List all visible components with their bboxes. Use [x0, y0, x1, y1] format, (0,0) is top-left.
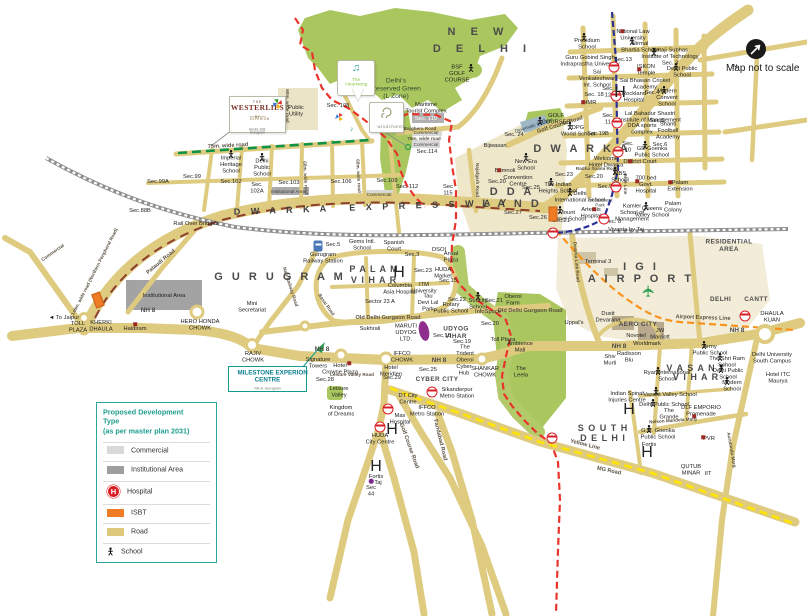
map-label: Shanti Football Academy — [656, 121, 680, 140]
road-swatch — [107, 528, 124, 536]
map-label: Leisure Valley Road — [330, 372, 374, 377]
map-label: Sukhrali — [360, 326, 381, 332]
dot-icon — [620, 29, 624, 33]
metro-icon — [599, 214, 610, 225]
map-label: Sec. 11 — [602, 113, 614, 126]
train-icon — [314, 241, 323, 252]
legend-label: School — [121, 547, 143, 555]
school-icon — [650, 399, 657, 408]
map-label: Sec.15 — [439, 278, 457, 284]
school-icon — [642, 141, 649, 150]
map-label: Delhi University South Campus — [752, 352, 792, 365]
legend: Proposed Development Type (as per master… — [96, 402, 217, 563]
map-label: Hotel Crowne Plaza — [322, 363, 358, 376]
map-label: Novotel — [626, 333, 646, 339]
map-label: ◄ To Jaipur — [49, 315, 80, 321]
map-label: GD Goenka Public School — [635, 146, 670, 159]
map-label: Gurugram Railway Station — [303, 252, 343, 265]
westerlies-location: Sector 108, Gurugram — [246, 128, 269, 134]
map-label: Fortis — [642, 442, 656, 448]
map-label: V I H A R — [673, 372, 719, 382]
map-label: The Trident Oberoi — [456, 344, 474, 363]
map-label: Sec.5 — [326, 242, 341, 248]
map-label: Sec. 10 — [622, 141, 634, 154]
map-label: GOLF COURSES — [542, 113, 570, 126]
map-label: Suncity School — [469, 298, 488, 311]
map-label: Sai Bhawan Cricket Academy — [620, 78, 670, 91]
map-label: Vasant Valley School — [643, 392, 697, 398]
map-label: IFFCO Metro Station — [410, 405, 444, 418]
school-icon — [581, 33, 588, 42]
milestone-name: MILESTONE EXPERION CENTRE — [237, 369, 297, 383]
map-label: Sikanderpur Metro Station — [440, 387, 474, 400]
map-label: Golf Course Road — [536, 115, 583, 135]
isbt-icon — [549, 207, 558, 222]
map-label: Gems Intl. School — [349, 239, 375, 252]
dot-icon — [635, 179, 639, 183]
map-label: Oberoi Farm — [504, 294, 521, 307]
map-label: RESIDENTIAL AREA — [705, 239, 752, 253]
map-label: Sec.20 — [481, 321, 499, 327]
map-label: Sec.29 — [383, 375, 401, 381]
school-icon — [724, 377, 731, 386]
legend-label: Institutional Area — [131, 466, 183, 474]
map-label: Tau Devi Lal Park — [418, 293, 439, 312]
map-label: Institutional Area — [143, 293, 186, 299]
map-label: The Leela — [514, 366, 528, 379]
map-label: Welcome Hotel Dwarka — [589, 156, 624, 169]
map-label: Sec.102 — [220, 179, 241, 185]
map-label: Old Delhi Gurgaon Road — [355, 315, 420, 321]
map-label: Sec.20 — [585, 174, 603, 180]
milestone-location: NH-8, Gurugram — [250, 387, 285, 391]
map-label: SHANKAR CHOWK — [471, 366, 499, 379]
map-label: Max Hospital — [390, 413, 411, 426]
map-label: UDYOG VIHAR — [443, 326, 468, 340]
map-label: Sec.25 — [522, 185, 540, 191]
windchants-logo: windchants — [369, 102, 404, 133]
legend-label: Hospital — [127, 487, 152, 495]
commercial-swatch — [107, 446, 124, 454]
map-label: Commercial — [414, 142, 439, 147]
map-label: NH 8 — [612, 343, 627, 350]
map-label: Fortis — [369, 474, 383, 480]
metro-icon — [427, 387, 438, 398]
map-label: NH 8 — [730, 327, 745, 334]
map-label: V I H A R — [351, 275, 397, 285]
map-label: New Railway Road — [281, 267, 299, 308]
map-label: 140m. wide road (Northern Peripheral Roa… — [71, 228, 120, 317]
map-label: Sec.23 — [555, 172, 573, 178]
map-label: D E L H I — [580, 433, 626, 443]
westerlies-pre: THE — [246, 101, 269, 103]
dot-icon — [628, 159, 632, 163]
map-label: Columbia Asia Hospital — [383, 283, 417, 296]
map-label: Sec.27 — [504, 210, 522, 216]
map-label: Sec. 110 — [415, 116, 437, 122]
westerlies-tagline: BY EXPERION — [250, 116, 266, 120]
map-label: I G I — [623, 261, 659, 273]
map-label: Hotel ITC Maurya — [766, 372, 790, 385]
map-label: Radisson Blu — [617, 351, 641, 364]
school-icon — [557, 206, 564, 215]
hospital-icon: H — [370, 458, 382, 476]
map-label: The Indian Heights School — [539, 182, 578, 195]
map-label: Bijwasan — [483, 143, 506, 149]
hospital-icon: H — [386, 421, 398, 439]
metro-icon — [613, 147, 624, 158]
map-label: Sec.99 — [183, 174, 201, 180]
map-label: Delhi Public School — [667, 66, 697, 79]
location-map: ♪ N E WD E L H ID W A R K AD D AL A N DI… — [0, 0, 807, 616]
map-label: Golf Course Road — [398, 423, 420, 470]
map-label: Basai Road — [317, 293, 336, 317]
map-label: Nelson Mandela Marg — [649, 417, 697, 426]
map-label: MBS School — [611, 171, 629, 184]
map-label: Sec.21 — [552, 218, 570, 224]
map-label: Ansal Plaza — [444, 251, 458, 264]
metro-icon — [611, 182, 622, 193]
school-icon — [548, 178, 555, 187]
map-label: D W A R K A E X P R E S S W A Y — [234, 197, 511, 217]
milestone-experion-callout: MILESTONE EXPERION CENTRE NH-8, Gurugram — [228, 366, 307, 392]
map-label: Commercial — [367, 192, 392, 197]
map-label: Sec.5 — [650, 118, 665, 124]
institutional-swatch — [107, 466, 124, 474]
map-label: DPG World School — [561, 125, 595, 138]
map-label: Signature Towers — [306, 357, 331, 370]
legend-row: School — [103, 543, 210, 559]
map-label: S O U T H — [578, 423, 629, 433]
map-label: Sec.26 — [529, 215, 547, 221]
map-label: Sec. 112 — [396, 184, 418, 190]
map-label: BSF GOLF COURSE — [445, 64, 470, 83]
map-label: Sec.103 — [278, 180, 299, 186]
map-label: L A N D — [482, 198, 542, 210]
map-label: G.D. Goenka Public School — [641, 428, 676, 441]
map-label: PVR — [703, 436, 715, 442]
map-label: NH 8 — [141, 307, 156, 314]
plane-icon: ✈ — [639, 284, 659, 297]
compass: N Map not to scale — [726, 38, 786, 74]
map-label: Sec.6 — [653, 142, 668, 148]
dot-icon — [637, 67, 641, 71]
isbt-icon — [91, 291, 105, 308]
map-label: D E L H I — [433, 43, 529, 55]
metro-icon — [740, 311, 751, 322]
school-icon — [643, 202, 650, 211]
map-label: InfoSpace — [475, 309, 501, 315]
map-label: HERO HONDA CHOWK — [180, 319, 219, 332]
map-label: Diplomatic Enclave — [514, 117, 553, 134]
map-label: Sec. 18 — [584, 92, 604, 98]
hospital-icon: H — [623, 401, 635, 419]
map-label: Sector 23 A — [365, 299, 395, 305]
map-label: Dwarka Link Road — [572, 242, 581, 283]
map-label: D W A R K A — [533, 143, 630, 155]
map-label: G U R U G R A M — [214, 271, 346, 283]
map-label: 75m. wide road — [208, 142, 249, 150]
map-label: QUTUB MINAR — [681, 464, 701, 477]
map-label: Sec.109 — [376, 178, 397, 184]
school-icon — [228, 150, 235, 159]
map-label: IFFCO CHOWK — [391, 351, 413, 364]
heartsong-name: The Heartsong — [345, 77, 367, 87]
isbt-swatch — [107, 509, 124, 517]
map-label: Toll Plaza — [491, 337, 516, 343]
hospital-icon: H — [393, 264, 405, 282]
map-label: Mount Carmel School — [548, 210, 586, 223]
dot-icon — [347, 361, 351, 365]
metro-icon — [383, 404, 394, 415]
legend-row: Road — [103, 523, 210, 539]
map-label: KHERKI DHAULA — [89, 320, 112, 333]
map-label: Bajghera Road — [404, 126, 437, 131]
map-label: Haldiram — [123, 326, 146, 332]
school-icon — [653, 387, 660, 396]
school-icon — [718, 365, 725, 374]
map-label: Presidium School — [574, 38, 600, 51]
map-label: MG Road — [596, 465, 621, 476]
map-label: Cyber Hub — [456, 364, 471, 377]
map-label: Faridabad Road — [432, 419, 448, 462]
pinwheel-icon — [272, 98, 283, 109]
map-label: Sec.13 — [614, 57, 632, 63]
map-label: Institutional Area — [271, 189, 305, 194]
map-label: Guru Gobind Singh Indraprastha Universit… — [560, 55, 619, 68]
map-label: Sec. 12 — [602, 86, 614, 99]
hospital-icon: H — [614, 84, 626, 102]
map-label: Blue Line — [622, 174, 627, 195]
map-label: Rockland Hospital — [622, 91, 646, 104]
map-label: Sec.22 — [448, 297, 466, 303]
map-label: Kamler School of Management — [615, 203, 649, 222]
map-label: Sec.18 — [433, 333, 451, 339]
metro-icon — [375, 422, 386, 433]
school-icon — [629, 37, 636, 46]
map-label: Terminal 3 — [585, 259, 612, 265]
school-icon — [651, 48, 658, 57]
heartsong-logo: ♫ The Heartsong — [337, 60, 375, 96]
music-notes-icon: ♫ — [338, 63, 374, 74]
school-icon — [673, 63, 680, 72]
map-label: Ryan International School — [644, 370, 691, 383]
map-label: Queens Valley School — [635, 206, 669, 219]
map-label: Mini Secretariat — [238, 301, 266, 314]
map-label: Sec. 24 — [504, 132, 524, 138]
map-label: Bamnoli — [495, 168, 516, 174]
map-label: 60m. wide road — [355, 159, 362, 193]
school-icon — [259, 153, 266, 162]
map-label: Sec.3 — [405, 252, 420, 258]
map-label: MARUTI UDYOG LTD. — [395, 323, 417, 342]
school-icon — [661, 86, 668, 95]
map-label: IHMR — [582, 100, 597, 106]
dot-icon — [581, 100, 585, 104]
map-label: IIT — [705, 471, 712, 477]
map-label: Sec.25 — [419, 367, 437, 373]
map-label: 700 bed Govt. Hospital — [636, 175, 657, 194]
map-label: TOLL PLAZA — [69, 321, 87, 334]
school-icon — [655, 367, 662, 376]
map-label: Dusit Devarana — [596, 311, 621, 324]
map-label: Yellow Line — [569, 438, 600, 451]
map-label: 60m. wide road — [302, 161, 309, 195]
map-label: Sai Venkateshwar Int. School — [579, 69, 615, 88]
map-label: Old Delhi Gurgaon Road — [497, 308, 562, 314]
school-swatch — [107, 547, 114, 556]
metro-icon — [612, 118, 623, 129]
map-label: Palam Colony — [664, 201, 682, 214]
hospital-icon: H — [641, 444, 653, 462]
hospital-swatch: H — [107, 485, 120, 498]
dot-icon — [133, 322, 137, 326]
legend-row: HHospital — [103, 481, 210, 501]
legend-label: Commercial — [131, 447, 169, 455]
golfer-icon — [537, 117, 544, 126]
metro-icon — [609, 62, 620, 73]
map-label: Najafgarh Road — [474, 163, 479, 197]
map-label: District Court — [623, 159, 656, 165]
map-label: D D A — [490, 186, 535, 198]
map-label: Spanish Court — [384, 240, 405, 253]
map-label: Sec.19 — [453, 339, 471, 345]
map-label: National Law University — [616, 29, 649, 42]
map-label: Netaji Subhas Institute of Technology Se… — [641, 47, 698, 66]
school-icon — [701, 341, 708, 350]
north-label: N — [733, 63, 738, 70]
school-icon — [646, 425, 653, 434]
map-label: New Era School — [515, 159, 537, 172]
legend-label: ISBT — [131, 509, 147, 517]
map-label: Nirmal Bhartia School — [621, 41, 658, 54]
map-label: Rotary Public School — [434, 302, 469, 315]
map-label: Modern School — [722, 380, 742, 393]
north-arrow-icon — [745, 38, 767, 60]
map-label: Indian Spinal Injuries Centre — [608, 391, 645, 404]
map-label: Delhi Public School — [639, 402, 689, 408]
map-label: Delhi's Reserved Green (L Zone) — [371, 78, 421, 101]
map-label: Sec.88B — [129, 208, 151, 214]
map-label: Vivanta by Taj — [608, 227, 644, 233]
map-label: Worldmark — [633, 341, 661, 347]
map-label: Pataudi Road — [145, 248, 176, 276]
map-label: The Grande — [659, 408, 678, 421]
dot-icon — [668, 180, 672, 184]
map-label: NH 8 — [315, 346, 330, 353]
map-label: P A L A M — [349, 264, 398, 274]
map-label: DDA sports complex — [627, 123, 656, 136]
dot-icon — [497, 168, 501, 172]
map-label: CYBER CITY — [416, 376, 459, 383]
map-label: Shiv Murti — [604, 354, 617, 367]
school-icon — [717, 353, 724, 362]
map-label: Sec.106 — [330, 179, 351, 185]
map-label: Uppal's — [564, 320, 583, 326]
map-label: DHAULA KUAN — [760, 311, 783, 324]
legend-row: Institutional Area — [103, 461, 210, 477]
map-label: RAJIV CHOWK — [242, 351, 264, 364]
map-label: Artemis Hospital — [581, 207, 602, 220]
metro-icon — [547, 433, 558, 444]
map-label: ISKON Temple — [637, 64, 656, 77]
map-label: Commercial — [41, 243, 66, 262]
legend-title-line1: Proposed Development Type — [103, 408, 199, 425]
map-label: Aurobindo Marg — [725, 432, 736, 468]
map-label: DT City Centre — [398, 393, 417, 406]
legend-row: Commercial — [103, 442, 210, 458]
dot-icon — [692, 414, 696, 418]
map-label: 75m. wide road — [407, 136, 441, 141]
map-label: Radha Soami Road — [576, 166, 618, 171]
legend-label: Road — [131, 528, 148, 536]
map-label: Taj — [374, 480, 381, 486]
map-label: Kingdom of Dreams — [328, 405, 355, 418]
map-label: Delhi Public School — [253, 158, 271, 177]
map-label: Sec.20 — [488, 179, 506, 185]
map-label: Sec.99A — [147, 179, 169, 185]
metro-icon — [611, 91, 622, 102]
map-label: Airport Express Line — [675, 314, 730, 322]
map-label: Modern Convent School — [656, 88, 677, 107]
school-icon — [567, 188, 574, 197]
school-icon — [567, 122, 574, 131]
map-label: Sec.9 — [598, 184, 613, 190]
map-label: Ambience Mall — [507, 341, 533, 354]
map-label: Delhi Public School — [713, 368, 743, 381]
map-label: Sec.114 — [417, 149, 438, 155]
map-label: Sec. 102A — [250, 182, 263, 195]
map-label: Delhi International School — [555, 191, 606, 204]
map-label: Lal Bahadur Shastri Institute of Managem… — [619, 111, 681, 124]
legend-row: ISBT — [103, 504, 210, 520]
map-label: Sec.4 — [645, 90, 660, 96]
legend-title-line2: (as per master plan 2031) — [103, 427, 199, 436]
map-label: Amusement Park — [588, 198, 613, 208]
map-label: A I R P O R T — [588, 273, 694, 285]
school-icon — [475, 292, 482, 301]
map-label: V A S A N T — [666, 363, 725, 373]
map-label: DLF EMPORIO Promenade — [681, 405, 721, 418]
map-label: Sec 44 — [366, 485, 376, 498]
windchants-name: windchants — [377, 125, 395, 129]
westerlies-logo: THE WESTERLIES BY EXPERION Sector 108, G… — [229, 96, 286, 133]
map-label: The Shri Ram School — [709, 356, 745, 369]
map-label: HUDA Market — [434, 267, 452, 280]
dot-icon — [592, 207, 596, 211]
map-label: Sec 115 — [443, 184, 453, 197]
school-icon — [523, 153, 530, 162]
map-label: Imperial Heritage School — [220, 155, 242, 174]
map-label: Sec. 8 — [605, 219, 621, 225]
map-label: Sec.21 — [485, 298, 503, 304]
map-label: ITM University — [411, 282, 436, 295]
map-label: HUDA City Centre — [366, 433, 395, 446]
map-label: Sec.28 — [316, 377, 334, 383]
golfer-icon — [468, 64, 475, 73]
map-label: Public Utility — [288, 105, 304, 118]
map-label: Palam Extension — [667, 180, 692, 193]
map-label: Rail Over Bridges — [173, 221, 218, 227]
map-label: Sec.19B — [587, 131, 609, 137]
map-label: DELHI CANTT — [710, 296, 768, 303]
map-label: AERO CITY — [619, 321, 657, 328]
map-label: JW Marriott — [650, 328, 670, 341]
map-label: N E W — [448, 26, 507, 38]
map-label: Commercial — [414, 130, 439, 135]
map-label: Maritime Tourist Complex — [405, 102, 446, 115]
dot-icon — [701, 435, 705, 439]
